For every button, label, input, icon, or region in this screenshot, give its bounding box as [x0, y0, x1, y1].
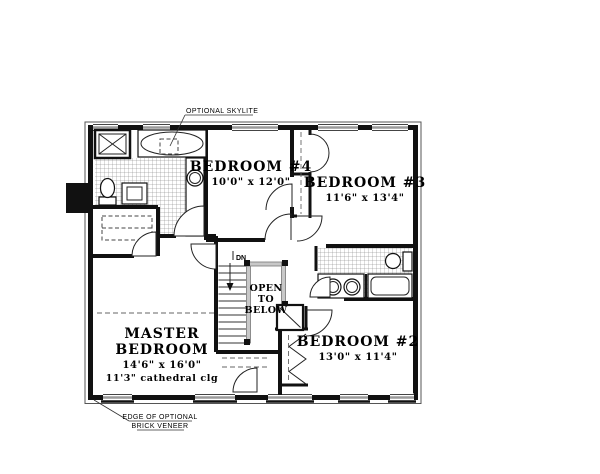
shower [95, 130, 130, 158]
chimney [66, 183, 91, 213]
bathtub [368, 274, 412, 298]
brick-veneer-label-line1: EDGE OF OPTIONAL [122, 414, 197, 421]
master-name-line2: BEDROOM [115, 342, 208, 358]
master-ceiling: 11'3" cathedral clg [106, 373, 218, 384]
master-south-door [233, 368, 257, 392]
stair-treads [219, 266, 247, 343]
open-below-line3: BELOW [245, 305, 288, 316]
bedroom3-entry-door [297, 216, 322, 241]
optional-skylite-label: OPTIONAL SKYLITE [186, 108, 258, 115]
open-below-line1: OPEN [250, 283, 283, 294]
bedroom3-name: BEDROOM #3 [304, 175, 427, 191]
bedroom2-entry-door [306, 310, 332, 336]
staircase: DN [219, 251, 247, 343]
bathtub [138, 130, 206, 157]
toilet [99, 179, 116, 206]
floor-plan-svg: DN [0, 0, 600, 474]
bedroom2-name: BEDROOM #2 [297, 334, 420, 350]
walk-in-closet-door [132, 232, 156, 256]
brick-veneer-label-line2: BRICK VENEER [132, 423, 189, 430]
bedroom3-dims: 11'6" x 13'4" [325, 193, 404, 204]
master-name-line1: MASTER [124, 326, 199, 342]
master-entry-door [191, 244, 216, 269]
bedroom4-dims: 10'0" x 12'0" [211, 177, 290, 188]
open-below-line2: TO [258, 294, 274, 305]
floor-plan: DN [0, 0, 600, 474]
hall-bath-door [310, 277, 330, 297]
bedroom4-name: BEDROOM #4 [190, 159, 313, 175]
master-dims: 14'6" x 16'0" [122, 360, 201, 371]
bedroom3-closet-door-right [310, 153, 329, 172]
bedroom4-entry-door [265, 214, 291, 240]
cabinet [122, 183, 147, 204]
bedroom3-closet-door-left [310, 134, 329, 153]
bedroom2-dims: 13'0" x 11'4" [318, 352, 397, 363]
